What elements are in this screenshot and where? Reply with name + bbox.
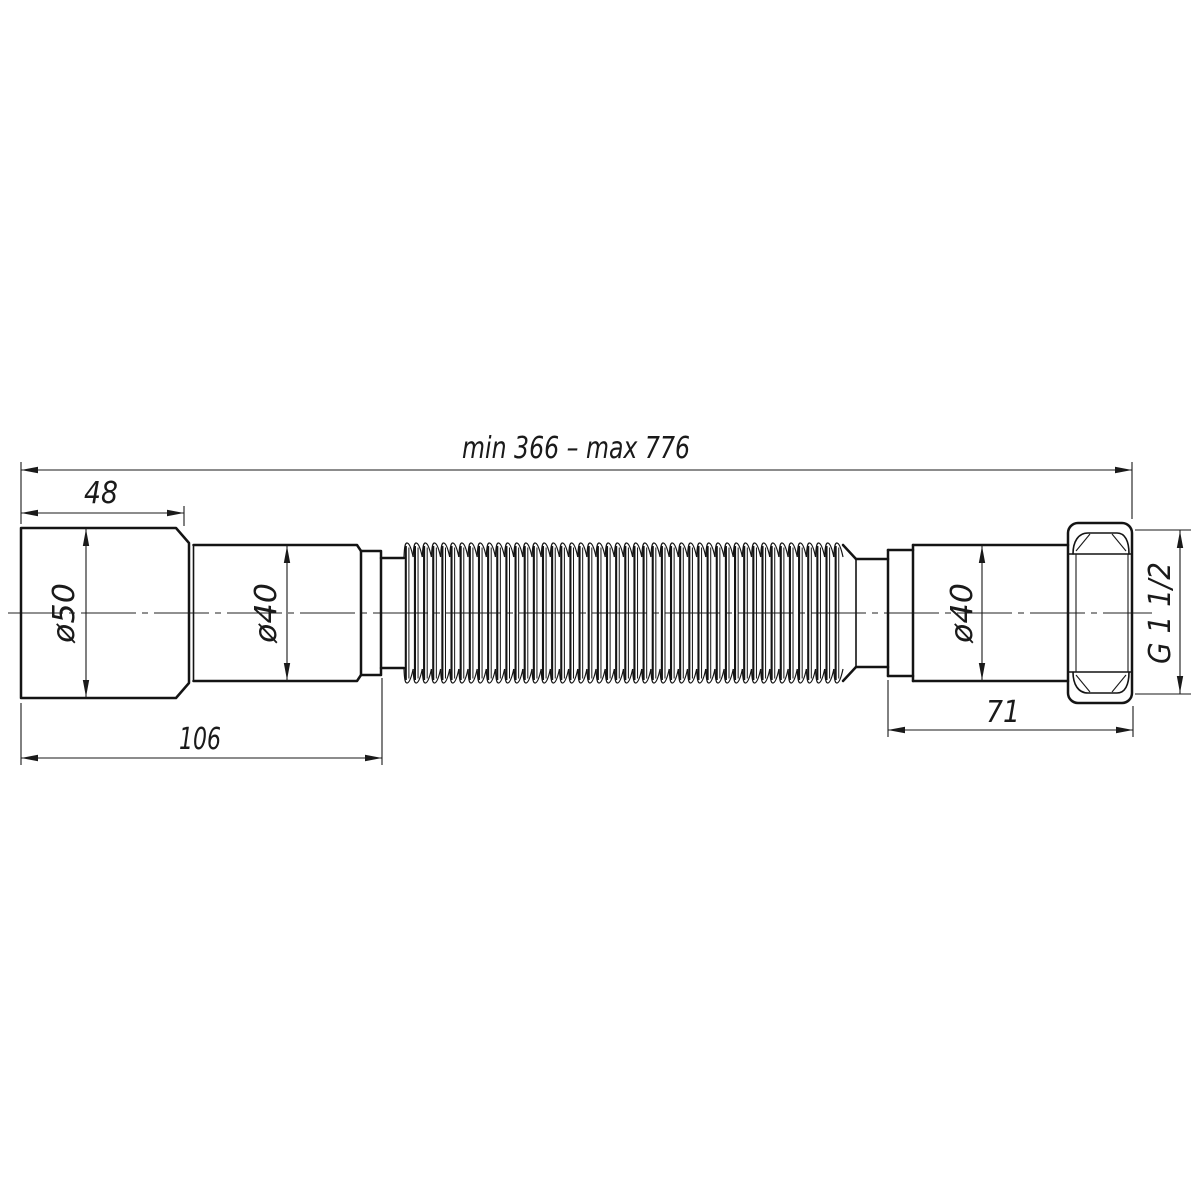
nut-bottom-chamfer xyxy=(1073,672,1129,693)
outlet-assembly-length-label: 71 xyxy=(986,695,1020,730)
flexible-drain-pipe-drawing: min 366 – max 776 48 106 71 ø50 ø40 ø40 … xyxy=(0,0,1200,1200)
inlet-tube-diameter-label: ø40 xyxy=(249,583,284,644)
dimension-labels: min 366 – max 776 48 106 71 ø50 ø40 ø40 … xyxy=(47,431,1178,757)
overall-length-label: min 366 – max 776 xyxy=(462,431,690,466)
thread-size-label: G 1 1/2 xyxy=(1143,562,1178,664)
inlet-length-label: 48 xyxy=(84,476,118,511)
outlet-tube-diameter-label: ø40 xyxy=(945,583,980,644)
inlet-tube xyxy=(194,545,405,681)
inlet-assembly-length-label: 106 xyxy=(179,722,221,757)
drawing-sheet: min 366 – max 776 48 106 71 ø50 ø40 ø40 … xyxy=(0,0,1200,1200)
inlet-diameter-label: ø50 xyxy=(47,583,82,644)
nut-top-chamfer xyxy=(1073,533,1129,554)
